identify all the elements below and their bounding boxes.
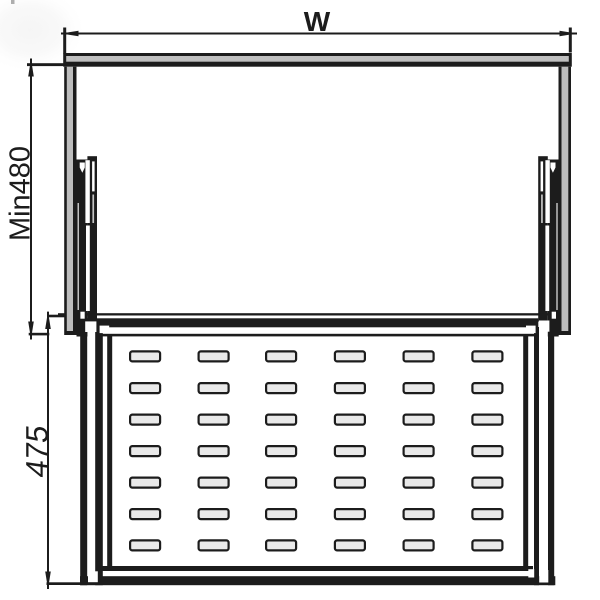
svg-text:Min480: Min480 xyxy=(4,146,36,241)
svg-text:W: W xyxy=(304,6,331,37)
svg-text:475: 475 xyxy=(20,423,55,480)
